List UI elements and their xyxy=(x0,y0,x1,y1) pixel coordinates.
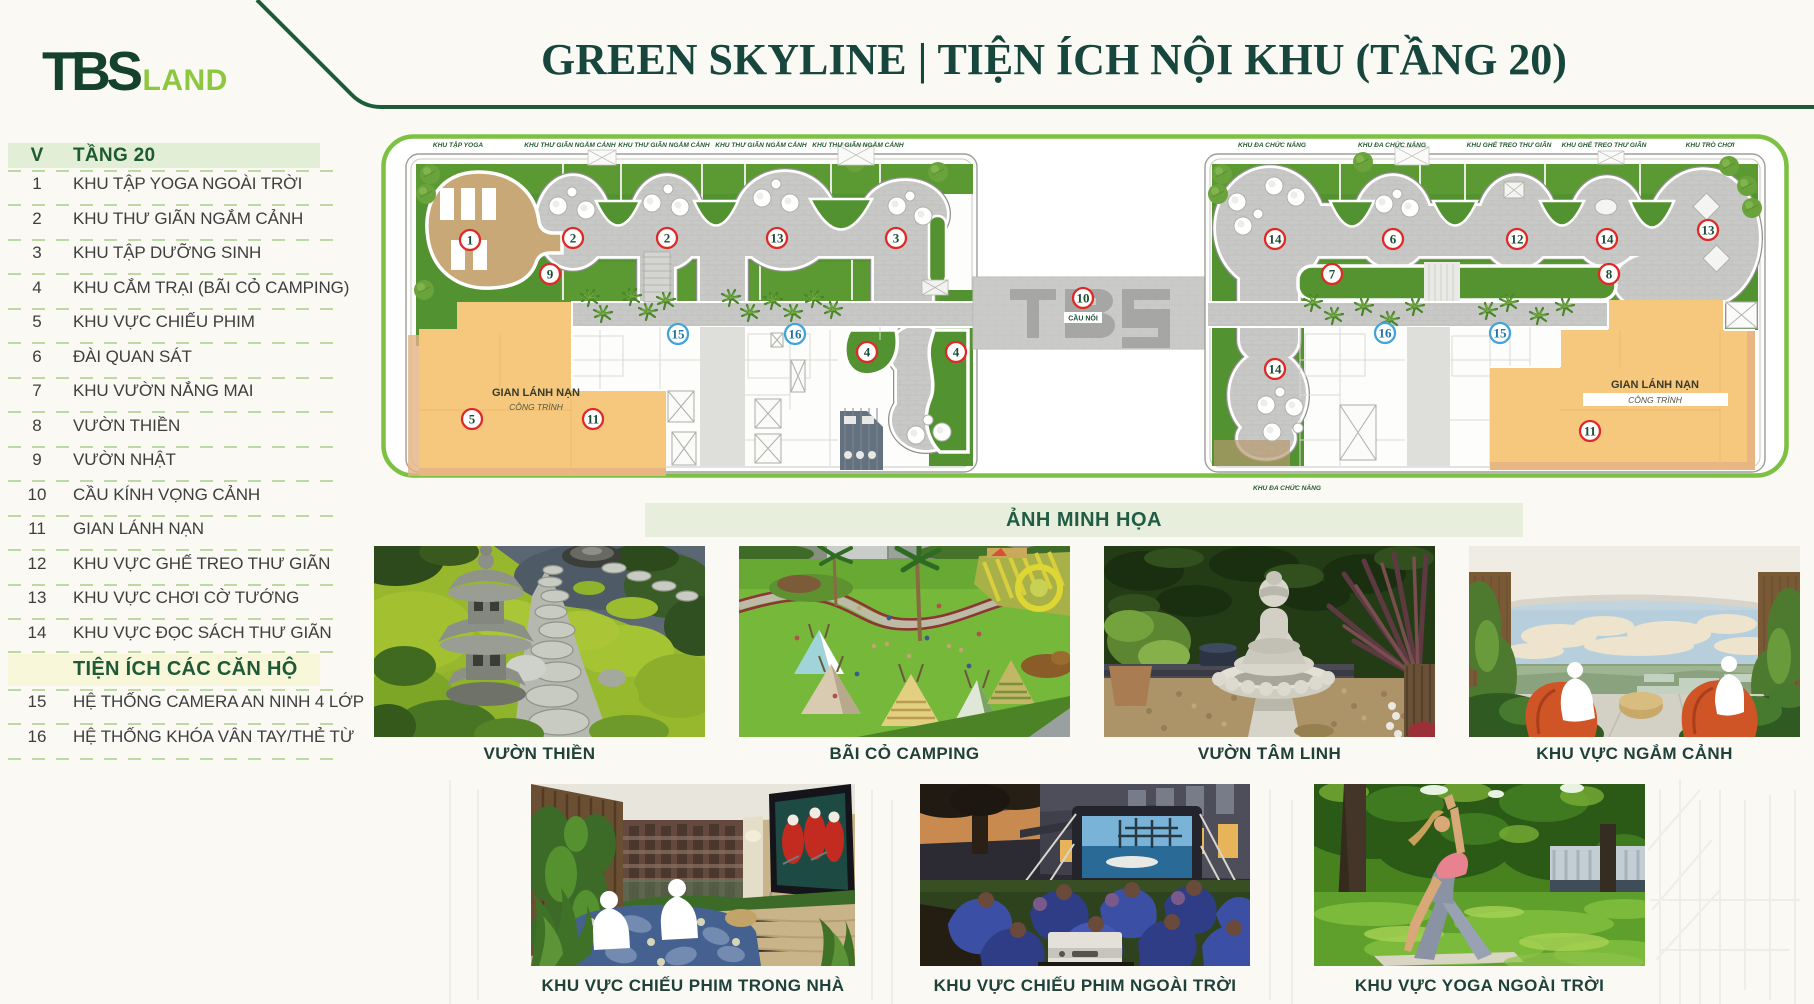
svg-text:KHU TẬP YOGA: KHU TẬP YOGA xyxy=(433,140,483,149)
svg-text:GIAN LÁNH NẠN: GIAN LÁNH NẠN xyxy=(492,386,580,399)
svg-text:14: 14 xyxy=(1269,362,1283,377)
svg-text:2: 2 xyxy=(570,231,577,246)
svg-text:6: 6 xyxy=(1390,232,1397,247)
svg-text:KHU GHẾ TREO THƯ GIÃN: KHU GHẾ TREO THƯ GIÃN xyxy=(1562,140,1647,149)
svg-text:8: 8 xyxy=(1606,267,1613,282)
svg-text:16: 16 xyxy=(789,327,803,342)
svg-text:KHU GHẾ TREO THƯ GIÃN: KHU GHẾ TREO THƯ GIÃN xyxy=(1467,140,1552,149)
svg-text:5: 5 xyxy=(469,412,476,427)
svg-text:4: 4 xyxy=(953,345,960,360)
svg-text:15: 15 xyxy=(672,327,686,342)
svg-text:11: 11 xyxy=(1584,424,1596,439)
svg-text:1: 1 xyxy=(467,233,474,248)
svg-text:CÔNG TRÌNH: CÔNG TRÌNH xyxy=(1628,395,1683,405)
svg-text:15: 15 xyxy=(1494,326,1508,341)
svg-text:3: 3 xyxy=(893,231,900,246)
svg-text:KHU THƯ GIÃN NGẮM CẢNH: KHU THƯ GIÃN NGẮM CẢNH xyxy=(618,140,710,149)
svg-text:7: 7 xyxy=(1329,267,1336,282)
svg-text:14: 14 xyxy=(1269,232,1283,247)
svg-text:KHU ĐA CHỨC NĂNG: KHU ĐA CHỨC NĂNG xyxy=(1358,140,1426,149)
svg-text:GIAN LÁNH NẠN: GIAN LÁNH NẠN xyxy=(1611,378,1699,391)
svg-text:9: 9 xyxy=(547,267,554,282)
svg-text:KHU THƯ GIÃN NGẮM CẢNH: KHU THƯ GIÃN NGẮM CẢNH xyxy=(715,140,807,149)
svg-text:KHU TRÒ CHƠI: KHU TRÒ CHƠI xyxy=(1686,140,1735,149)
svg-text:KHU ĐA CHỨC NĂNG: KHU ĐA CHỨC NĂNG xyxy=(1238,140,1306,149)
svg-text:13: 13 xyxy=(1702,223,1716,238)
svg-text:11: 11 xyxy=(587,412,599,427)
svg-text:13: 13 xyxy=(771,231,785,246)
svg-text:14: 14 xyxy=(1601,232,1615,247)
svg-text:KHU THƯ GIÃN NGẮM CẢNH: KHU THƯ GIÃN NGẮM CẢNH xyxy=(812,140,904,149)
svg-text:2: 2 xyxy=(664,231,671,246)
svg-text:KHU ĐA CHỨC NĂNG: KHU ĐA CHỨC NĂNG xyxy=(1253,483,1321,492)
svg-text:12: 12 xyxy=(1511,232,1524,247)
svg-text:CÔNG TRÌNH: CÔNG TRÌNH xyxy=(509,402,564,412)
svg-text:KHU THƯ GIÃN NGẮM CẢNH: KHU THƯ GIÃN NGẮM CẢNH xyxy=(524,140,616,149)
svg-text:4: 4 xyxy=(864,345,871,360)
svg-text:16: 16 xyxy=(1379,326,1393,341)
svg-text:10: 10 xyxy=(1077,291,1090,306)
